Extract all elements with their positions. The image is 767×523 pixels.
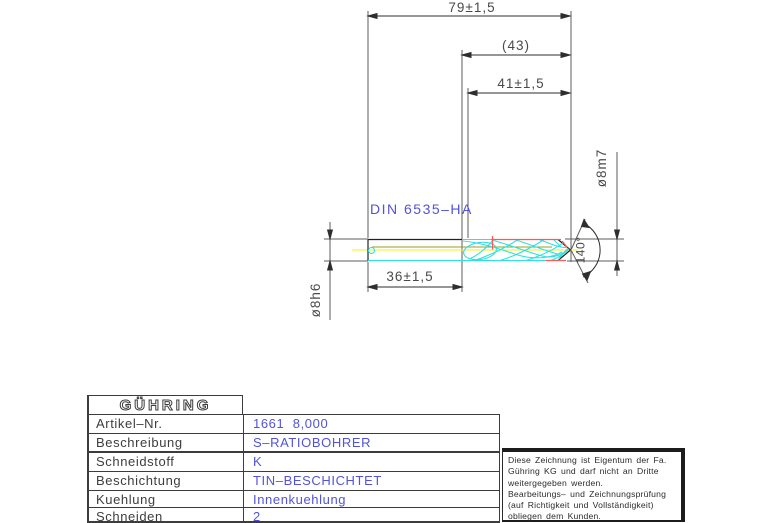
note-line: (auf Richtigkeit und Vollständigkeit) (508, 500, 679, 511)
note-line: Bearbeitungs– und Zeichnungsprüfung (508, 489, 679, 500)
table-row: Artikel–Nr. 1661 8,000 (89, 415, 499, 434)
row-value: S–RATIOBOHRER (244, 434, 499, 451)
row-value: 1661 8,000 (244, 415, 499, 433)
row-value: TIN–BESCHICHTET (244, 472, 499, 490)
ownership-note: Diese Zeichnung ist Eigentum der Fa. Güh… (502, 448, 685, 522)
table-row: Kuehlung Innenkuehlung (89, 491, 499, 508)
table-row: Schneiden 2 (89, 508, 499, 521)
row-value: K (244, 453, 499, 471)
dim-shank-diameter: ø8h6 (308, 283, 323, 318)
row-label: Schneiden (89, 508, 244, 521)
extension-lines (324, 11, 624, 320)
dim-overall-length: 79±1,5 (448, 0, 495, 15)
shank-standard-label: DIN 6535–HA (370, 201, 473, 217)
note-line: weitergegeben werden. (508, 478, 679, 489)
brand-logo: GÜHRING (120, 397, 212, 414)
drawing-sheet: 79±1,5 (43) 41±1,5 36±1,5 ø8h6 ø8m7 140°… (0, 0, 767, 523)
note-line: obliegen dem Kunden. (508, 511, 679, 522)
note-line: Gühring KG und darf nicht an Dritte (508, 466, 679, 477)
table-row: Schneidstoff K (89, 453, 499, 472)
row-value: 2 (244, 508, 499, 521)
row-value: Innenkuehlung (244, 491, 499, 507)
note-line: Diese Zeichnung ist Eigentum der Fa. (508, 455, 679, 466)
row-label: Beschichtung (89, 472, 244, 490)
brand-cell: GÜHRING (87, 395, 243, 415)
flute-spirals (368, 240, 569, 262)
table-row: Beschreibung S–RATIOBOHRER (89, 434, 499, 453)
row-label: Artikel–Nr. (89, 415, 244, 433)
dim-cutting-diameter: ø8m7 (594, 149, 609, 188)
dim-length-ref: (43) (502, 38, 530, 53)
row-label: Beschreibung (89, 434, 244, 451)
drill-body (352, 236, 578, 262)
spec-table-body: Artikel–Nr. 1661 8,000 Beschreibung S–RA… (87, 414, 500, 523)
row-label: Schneidstoff (89, 453, 244, 471)
dim-clamp-length: 36±1,5 (386, 269, 433, 284)
table-row: Beschichtung TIN–BESCHICHTET (89, 472, 499, 491)
row-label: Kuehlung (89, 491, 244, 507)
dim-flute-length: 41±1,5 (497, 76, 544, 91)
